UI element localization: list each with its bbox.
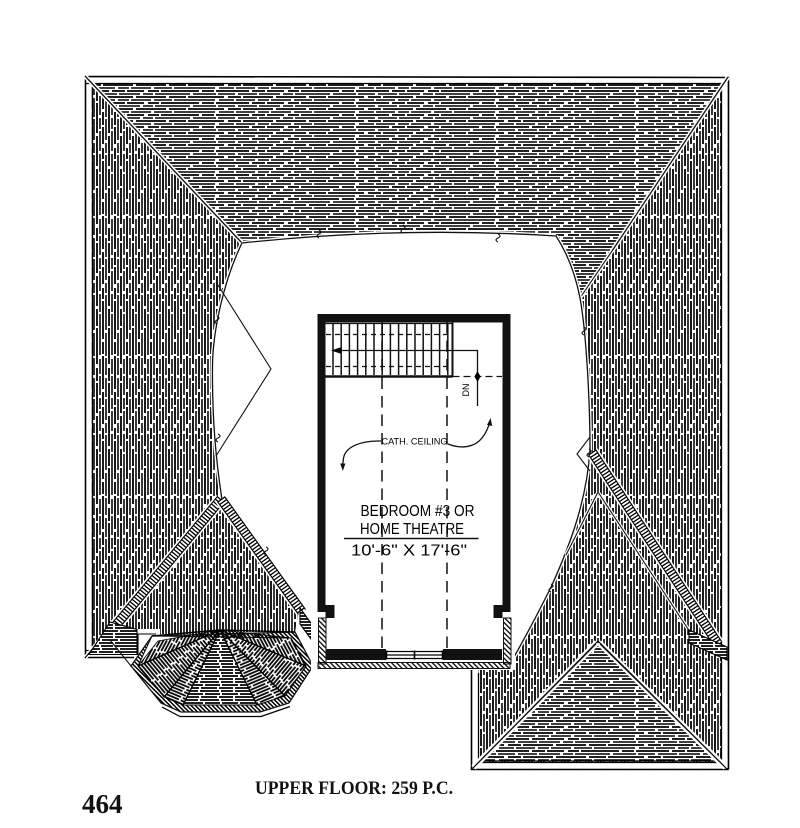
svg-text:HOME THEATRE: HOME THEATRE xyxy=(360,521,464,538)
svg-text:UPPER FLOOR: 259 P.C.: UPPER FLOOR: 259 P.C. xyxy=(255,778,453,799)
svg-text:DN: DN xyxy=(461,384,471,397)
svg-text:10'-6" X 17'-6": 10'-6" X 17'-6" xyxy=(351,543,467,560)
svg-text:BEDROOM #3 OR: BEDROOM #3 OR xyxy=(361,503,475,520)
svg-text:464: 464 xyxy=(82,789,123,819)
svg-text:CATH. CEILING: CATH. CEILING xyxy=(382,437,448,448)
